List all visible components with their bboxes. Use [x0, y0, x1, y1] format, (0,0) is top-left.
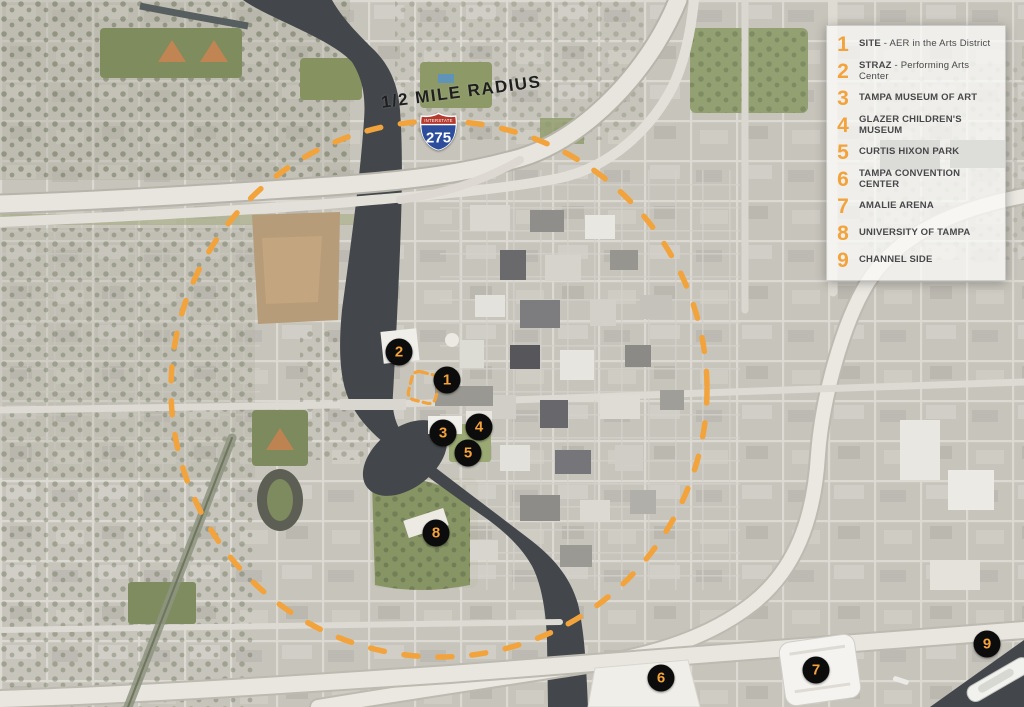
legend-item-8: 8UNIVERSITY OF TAMPA — [827, 220, 1005, 247]
legend-item-5: 5CURTIS HIXON PARK — [827, 139, 1005, 166]
legend-item-number: 5 — [827, 142, 859, 163]
map-marker-8: 8 — [423, 520, 450, 547]
convention-center-building — [588, 660, 700, 707]
map-marker-2: 2 — [386, 339, 413, 366]
legend-item-4: 4GLAZER CHILDREN'S MUSEUM — [827, 112, 1005, 139]
legend-item-number: 2 — [827, 61, 859, 82]
legend-item-number: 8 — [827, 223, 859, 244]
site-context-map: 1/2 MILE RADIUS INTERSTATE 275 123456789… — [0, 0, 1024, 707]
legend-item-label: STRAZ - Performing Arts Center — [859, 61, 1005, 83]
legend-item-label: CHANNEL SIDE — [859, 255, 936, 266]
legend-item-2: 2STRAZ - Performing Arts Center — [827, 58, 1005, 85]
shield-number-text: 275 — [426, 129, 451, 146]
map-marker-5: 5 — [455, 440, 482, 467]
legend-item-number: 4 — [827, 115, 859, 136]
shield-interstate-text: INTERSTATE — [424, 118, 452, 123]
map-marker-4: 4 — [466, 414, 493, 441]
legend-items: 1SITE - AER in the Arts District2STRAZ -… — [827, 31, 1005, 274]
legend-item-label: SITE - AER in the Arts District — [859, 39, 994, 50]
legend-item-label: TAMPA CONVENTION CENTER — [859, 169, 1005, 191]
legend-panel: 1SITE - AER in the Arts District2STRAZ -… — [826, 25, 1006, 281]
legend-item-number: 3 — [827, 88, 859, 109]
legend-item-9: 9CHANNEL SIDE — [827, 247, 1005, 274]
legend-item-label: AMALIE ARENA — [859, 201, 938, 212]
legend-item-7: 7AMALIE ARENA — [827, 193, 1005, 220]
legend-item-6: 6TAMPA CONVENTION CENTER — [827, 166, 1005, 193]
legend-item-number: 6 — [827, 169, 859, 190]
legend-item-number: 7 — [827, 196, 859, 217]
map-marker-3: 3 — [430, 420, 457, 447]
construction-site — [252, 212, 340, 324]
interstate-275-shield: INTERSTATE 275 — [419, 112, 458, 151]
map-marker-9: 9 — [974, 631, 1001, 658]
legend-item-1: 1SITE - AER in the Arts District — [827, 31, 1005, 58]
legend-item-number: 1 — [827, 34, 859, 55]
legend-item-number: 9 — [827, 250, 859, 271]
legend-item-label: UNIVERSITY OF TAMPA — [859, 228, 974, 239]
legend-item-label: GLAZER CHILDREN'S MUSEUM — [859, 115, 1005, 137]
map-marker-1: 1 — [434, 367, 461, 394]
map-marker-6: 6 — [648, 665, 675, 692]
legend-item-3: 3TAMPA MUSEUM OF ART — [827, 85, 1005, 112]
legend-item-label: TAMPA MUSEUM OF ART — [859, 93, 981, 104]
legend-item-label: CURTIS HIXON PARK — [859, 147, 963, 158]
map-marker-7: 7 — [803, 657, 830, 684]
